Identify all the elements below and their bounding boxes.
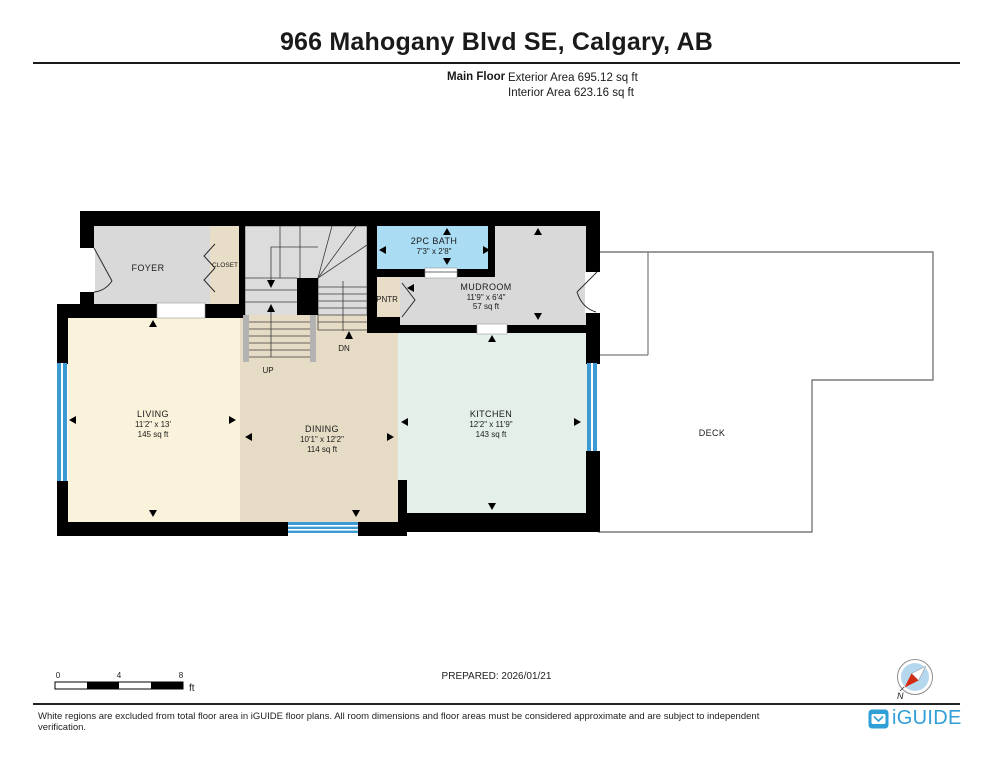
scale-unit: ft bbox=[189, 683, 195, 694]
foyer-living-opening bbox=[157, 303, 205, 318]
kitchen-window bbox=[587, 363, 597, 451]
deck-outline bbox=[598, 252, 933, 532]
floor-plan-drawing: FOYER CLOSET 2PC BATH 7'3" x 2'8" PNTR M… bbox=[0, 0, 993, 768]
stairs-up-label: UP bbox=[262, 366, 273, 375]
mudroom-kitchen-opening bbox=[477, 324, 507, 334]
iguide-logo-icon bbox=[868, 709, 889, 729]
iguide-logo: iGUIDE bbox=[868, 707, 962, 730]
kitchen-label: KITCHEN bbox=[470, 409, 512, 419]
bath-door-opening bbox=[425, 268, 457, 278]
living-label: LIVING bbox=[137, 409, 169, 419]
deck-label: DECK bbox=[699, 428, 726, 438]
bath-dims: 7'3" x 2'8" bbox=[417, 247, 452, 256]
dining-floor bbox=[240, 315, 398, 522]
foyer-label: FOYER bbox=[131, 263, 164, 273]
living-area: 145 sq ft bbox=[138, 430, 169, 439]
kitchen-dims: 12'2" x 11'9" bbox=[469, 420, 512, 429]
living-window bbox=[57, 363, 67, 481]
dining-dims: 10'1" x 12'2" bbox=[300, 435, 344, 444]
closet-label: CLOSET bbox=[212, 262, 238, 269]
floor-plan-page: 966 Mahogany Blvd SE, Calgary, AB Main F… bbox=[0, 0, 993, 768]
mudroom-label: MUDROOM bbox=[460, 282, 511, 292]
footer-divider bbox=[33, 703, 960, 705]
compass-north-label: N bbox=[897, 691, 904, 701]
mudroom-area: 57 sq ft bbox=[473, 302, 500, 311]
stairs-down-label: DN bbox=[338, 344, 350, 353]
bath-label: 2PC BATH bbox=[411, 236, 458, 246]
dining-window bbox=[288, 522, 358, 533]
mudroom-dims: 11'9" x 6'4" bbox=[467, 293, 506, 302]
living-dims: 11'2" x 13' bbox=[135, 420, 171, 429]
footer-disclaimer: White regions are excluded from total fl… bbox=[38, 711, 808, 733]
pantry-label: PNTR bbox=[376, 295, 398, 304]
prepared-date: PREPARED: 2026/01/21 bbox=[0, 671, 993, 682]
iguide-logo-text: iGUIDE bbox=[892, 707, 962, 730]
kitchen-area: 143 sq ft bbox=[476, 430, 507, 439]
dining-area: 114 sq ft bbox=[307, 445, 338, 454]
dining-label: DINING bbox=[305, 424, 339, 434]
